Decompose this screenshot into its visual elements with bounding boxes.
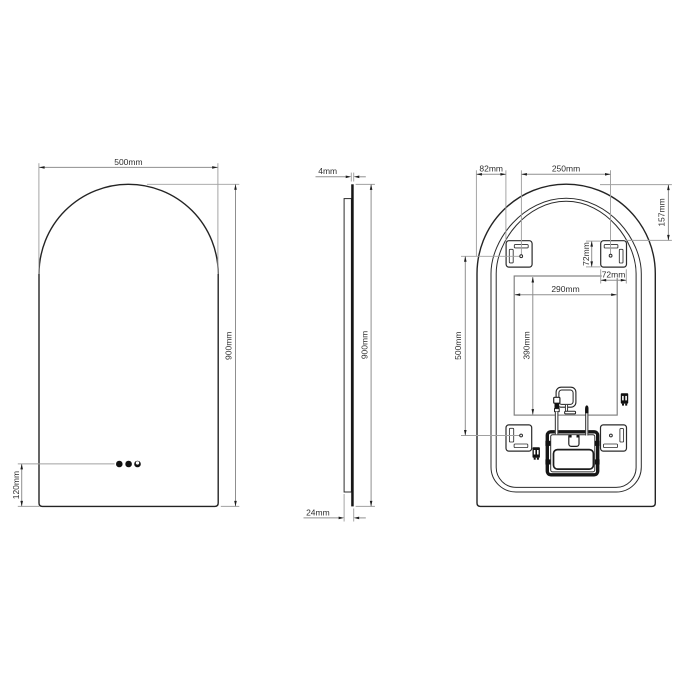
svg-text:900mm: 900mm [223, 332, 233, 360]
svg-text:500mm: 500mm [453, 332, 463, 360]
svg-text:250mm: 250mm [552, 163, 580, 173]
svg-text:390mm: 390mm [522, 331, 532, 359]
svg-text:290mm: 290mm [551, 284, 579, 294]
svg-text:24mm: 24mm [306, 508, 330, 518]
svg-text:500mm: 500mm [114, 157, 142, 167]
svg-text:4mm: 4mm [318, 166, 337, 176]
svg-text:120mm: 120mm [11, 471, 21, 499]
svg-text:72mm: 72mm [602, 269, 626, 279]
svg-text:900mm: 900mm [360, 331, 370, 359]
svg-text:157mm: 157mm [656, 198, 666, 226]
svg-text:82mm: 82mm [479, 163, 503, 173]
svg-text:72mm: 72mm [581, 242, 591, 266]
